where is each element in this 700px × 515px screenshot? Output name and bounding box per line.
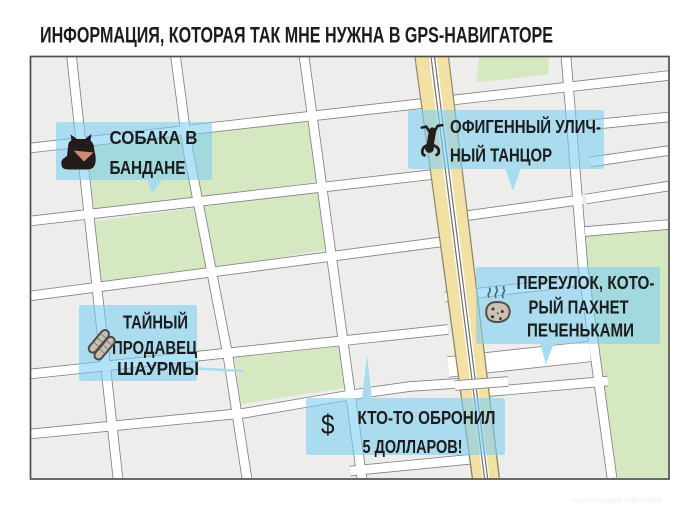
svg-text:РЫЙ ПАХНЕТ: РЫЙ ПАХНЕТ <box>529 297 630 318</box>
svg-text:БАНДАНЕ: БАНДАНЕ <box>110 157 186 178</box>
svg-text:КТО-ТО ОБРОНИЛ: КТО-ТО ОБРОНИЛ <box>358 407 496 428</box>
svg-text:5 ДОЛЛАРОВ!: 5 ДОЛЛАРОВ! <box>363 436 463 457</box>
svg-text:$: $ <box>321 409 335 440</box>
svg-text:ТАЙНЫЙ: ТАЙНЫЙ <box>123 312 188 333</box>
svg-text:СОБАКА В: СОБАКА В <box>110 127 198 148</box>
svg-text:ШАУРМЫ: ШАУРМЫ <box>117 358 199 379</box>
svg-text:НЫЙ ТАНЦОР: НЫЙ ТАНЦОР <box>450 145 552 166</box>
svg-text:ПРОДАВЕЦ: ПРОДАВЕЦ <box>112 337 197 358</box>
svg-text:прикольные картинки: прикольные картинки <box>572 495 662 505</box>
svg-text:ПЕРЕУЛОК, КОТО-: ПЕРЕУЛОК, КОТО- <box>517 272 655 293</box>
svg-text:ИНФОРМАЦИЯ, КОТОРАЯ ТАК МНЕ НУ: ИНФОРМАЦИЯ, КОТОРАЯ ТАК МНЕ НУЖНА В GPS-… <box>40 23 553 48</box>
svg-text:ПЕЧЕНЬКАМИ: ПЕЧЕНЬКАМИ <box>527 320 634 341</box>
svg-text:ОФИГЕННЫЙ УЛИЧ-: ОФИГЕННЫЙ УЛИЧ- <box>450 116 601 137</box>
